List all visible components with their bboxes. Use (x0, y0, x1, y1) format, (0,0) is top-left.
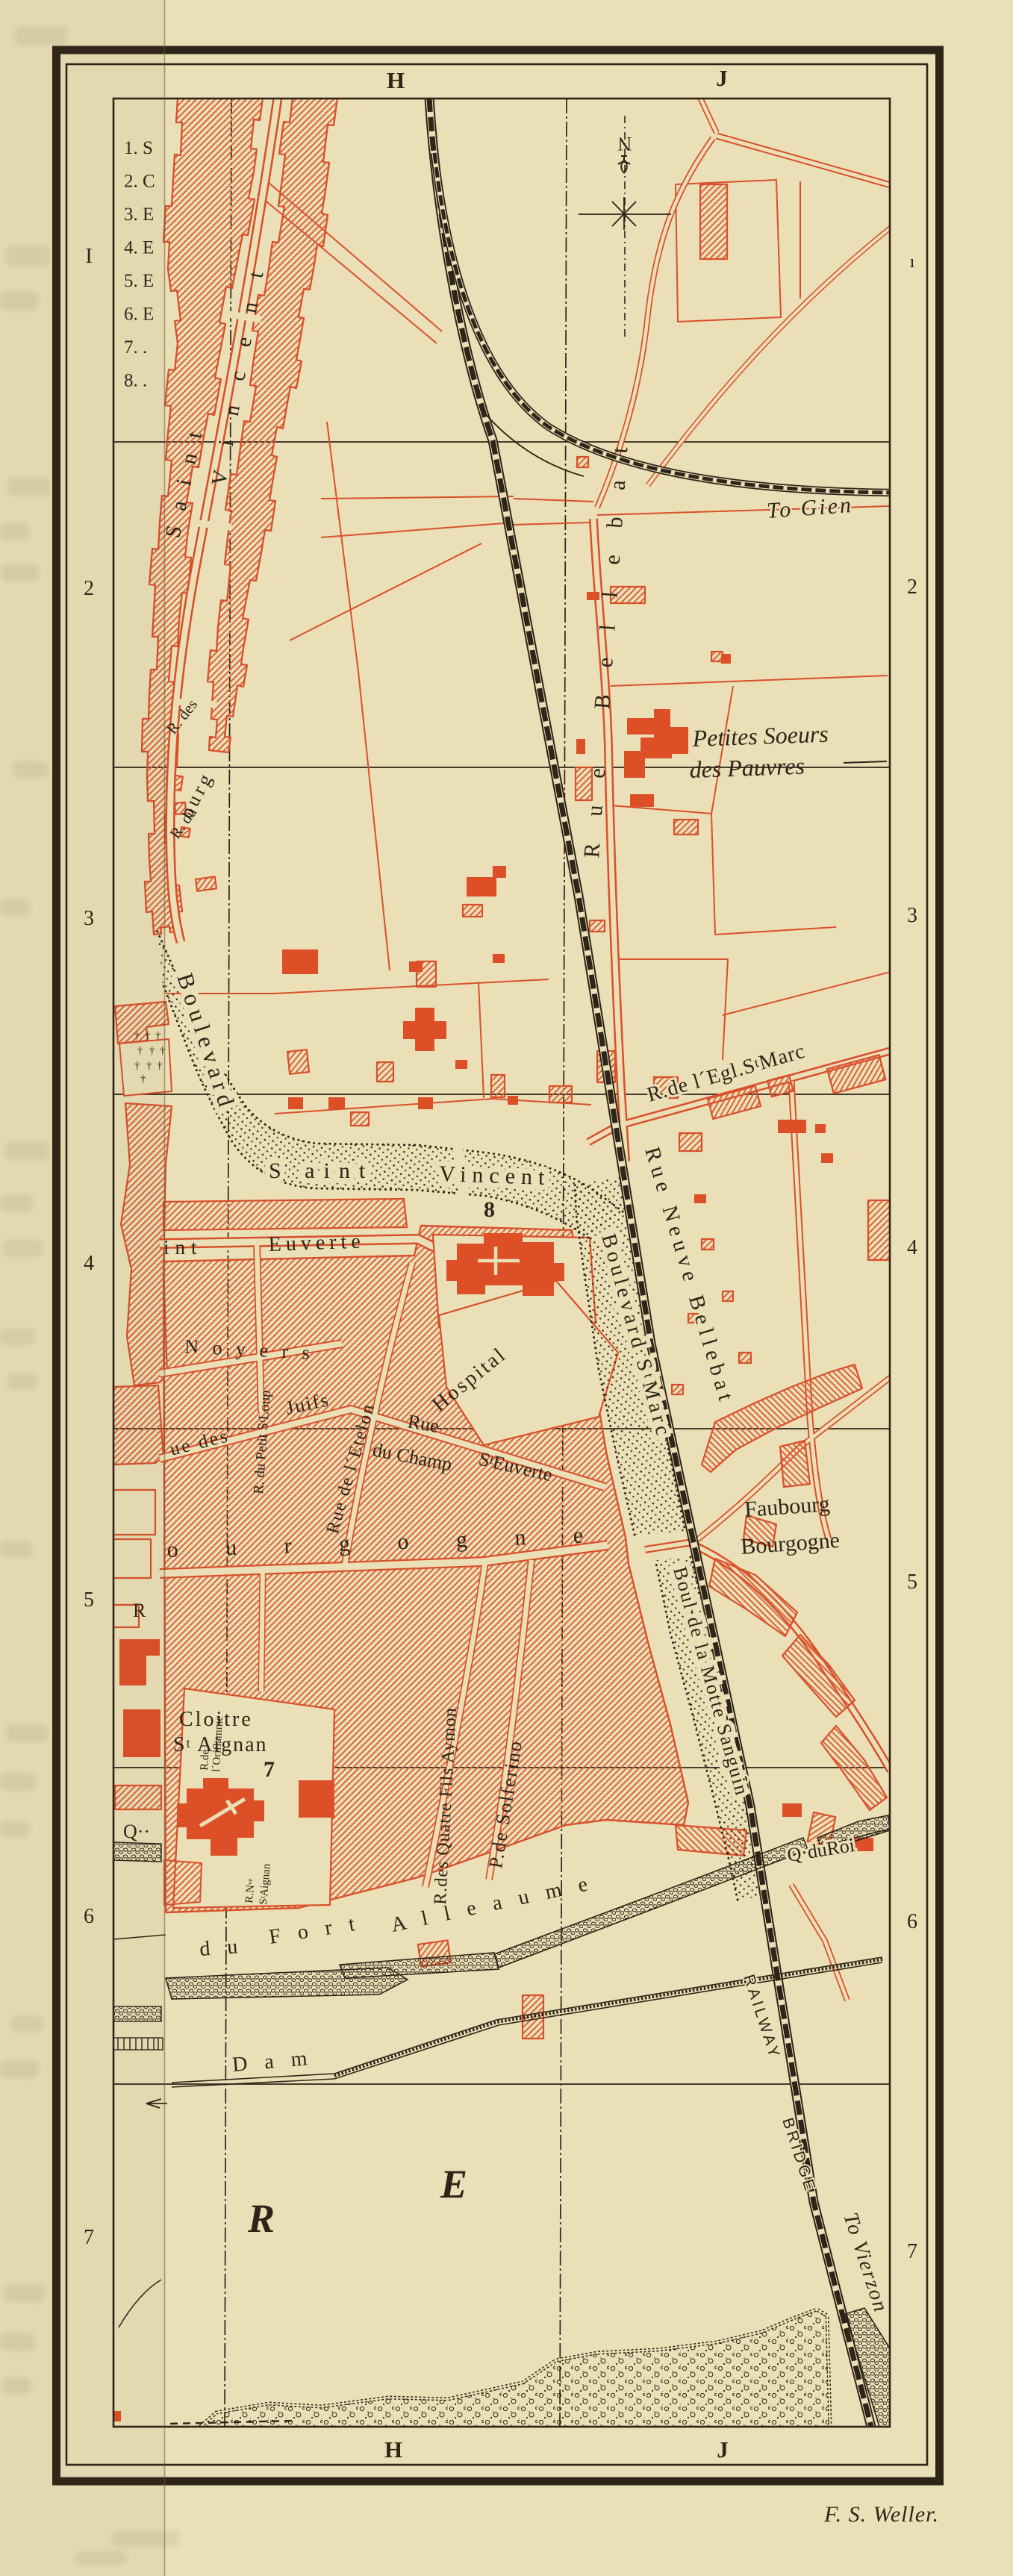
svg-text:H: H (384, 2436, 402, 2463)
svg-text:Petites Soeurs: Petites Soeurs (691, 720, 829, 752)
svg-text:E: E (440, 2162, 467, 2207)
svg-text:F. S. Weller.: F. S. Weller. (823, 2502, 939, 2527)
svg-text:J: J (716, 65, 728, 91)
svg-text:R: R (247, 2196, 275, 2241)
svg-text:J: J (717, 2436, 729, 2463)
svg-text:Vincent: Vincent (439, 1161, 551, 1190)
svg-text:Cloitre: Cloitre (179, 1708, 253, 1731)
svg-text:des Pauvres: des Pauvres (689, 752, 805, 783)
svg-text:7: 7 (264, 1757, 275, 1782)
svg-text:2: 2 (907, 576, 917, 599)
svg-text:4: 4 (907, 1236, 917, 1259)
svg-text:Euverte: Euverte (268, 1230, 365, 1256)
svg-text:d u: d u (199, 1935, 244, 1961)
svg-text:int: int (163, 1236, 203, 1259)
svg-text:H: H (387, 67, 405, 93)
svg-text:ı: ı (910, 252, 915, 272)
svg-text:8: 8 (484, 1197, 495, 1222)
svg-text:6: 6 (907, 1910, 917, 1933)
svg-text:7: 7 (907, 2240, 917, 2263)
svg-text:3: 3 (907, 904, 917, 927)
svg-text:S aint: S aint (269, 1158, 374, 1183)
svg-text:N: N (617, 133, 632, 155)
svg-text:5: 5 (907, 1571, 917, 1594)
